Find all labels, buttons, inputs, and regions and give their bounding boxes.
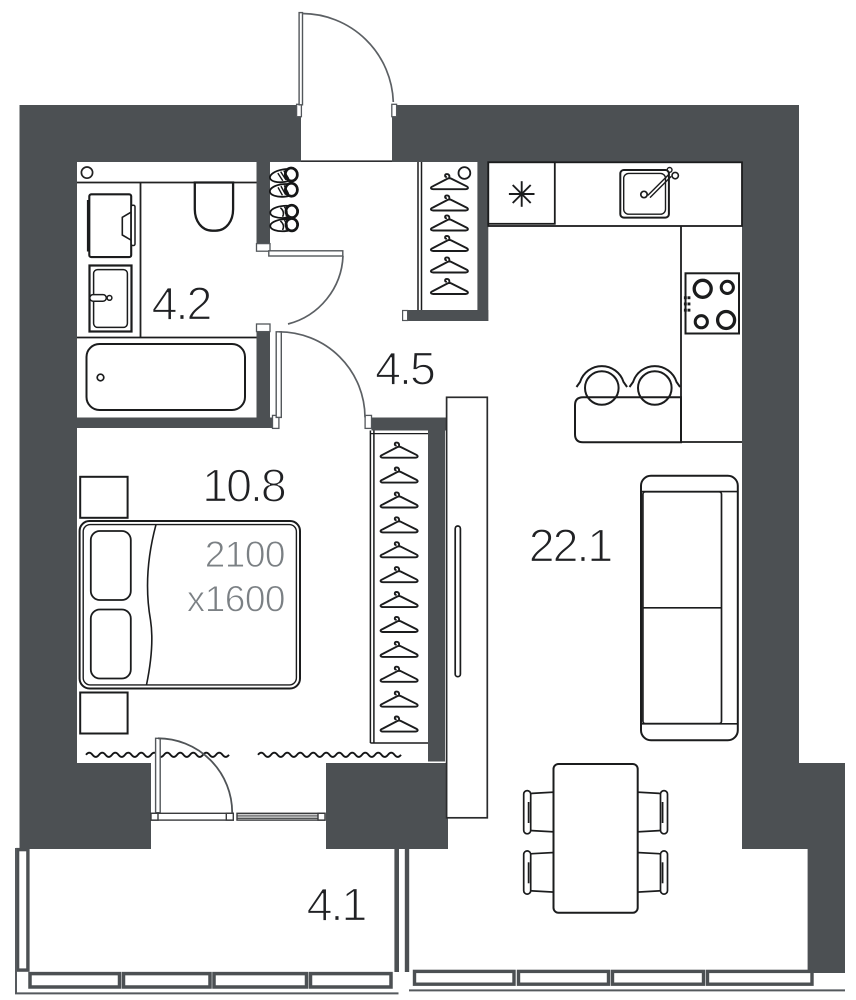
svg-text:4.1: 4.1 (307, 879, 366, 931)
svg-text:4.2: 4.2 (152, 278, 211, 330)
svg-text:x1600: x1600 (187, 578, 285, 619)
svg-text:2100: 2100 (205, 534, 285, 575)
svg-text:4.5: 4.5 (375, 343, 434, 395)
svg-text:22.1: 22.1 (529, 520, 612, 572)
svg-text:10.8: 10.8 (202, 460, 285, 512)
